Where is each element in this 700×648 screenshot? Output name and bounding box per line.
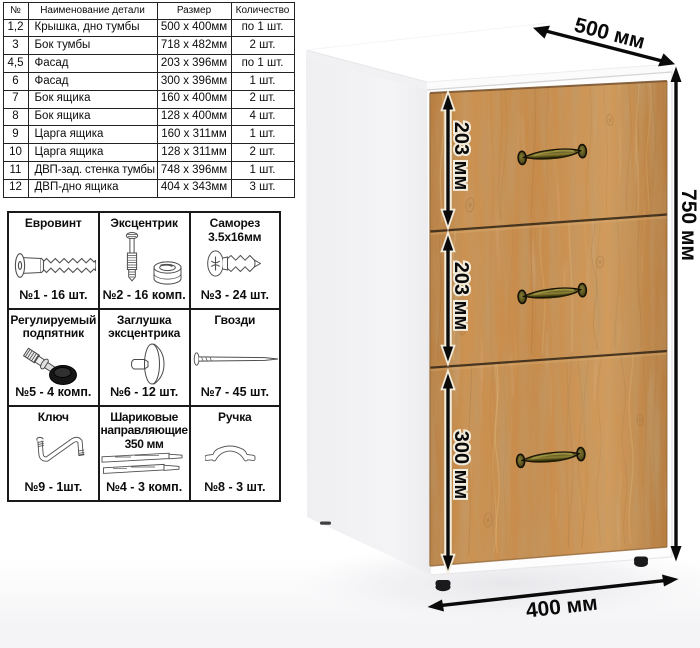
svg-text:203 мм: 203 мм xyxy=(450,122,472,191)
svg-text:203 мм: 203 мм xyxy=(450,262,472,331)
svg-text:300 мм: 300 мм xyxy=(450,431,472,500)
svg-text:750 мм: 750 мм xyxy=(677,189,700,261)
